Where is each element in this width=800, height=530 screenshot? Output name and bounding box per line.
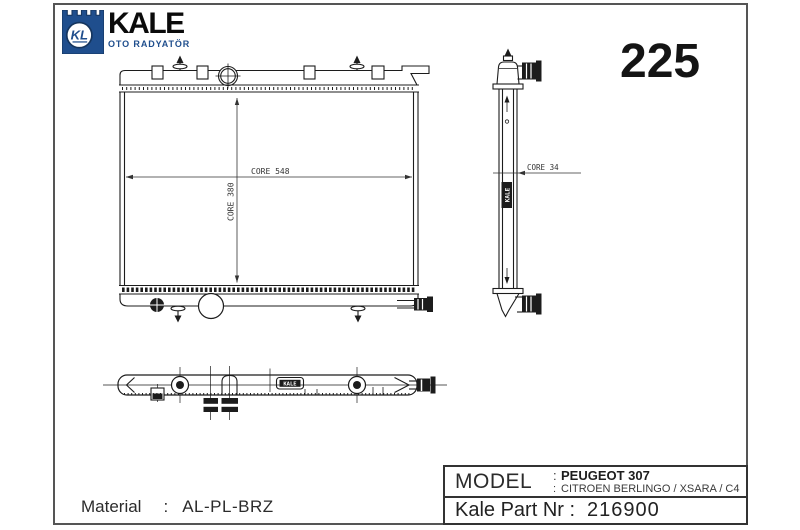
model-label: MODEL bbox=[445, 470, 553, 494]
radiator-technical-drawing: CORE 548 CORE 380 bbox=[0, 0, 800, 530]
model-row: MODEL :PEUGEOT 307 :CITROEN BERLINGO / X… bbox=[445, 467, 746, 498]
model-separator: : bbox=[553, 469, 561, 484]
mounting-pin-top-right bbox=[350, 56, 364, 71]
material-line: Material : AL-PL-BRZ bbox=[81, 497, 274, 517]
outlet-boss bbox=[199, 294, 224, 319]
part-number-value: 216900 bbox=[587, 499, 660, 522]
front-view-dimensions bbox=[126, 98, 412, 283]
mounting-pin-top-left bbox=[173, 56, 187, 71]
title-block: MODEL :PEUGEOT 307 :CITROEN BERLINGO / X… bbox=[443, 465, 748, 525]
bottom-view-drawing: KALE bbox=[103, 366, 447, 420]
bottom-pin-left bbox=[172, 367, 189, 403]
side-view-brand-tag: KALE bbox=[502, 182, 513, 208]
model-primary-text: PEUGEOT 307 bbox=[561, 468, 650, 483]
svg-text:KALE: KALE bbox=[283, 382, 296, 388]
bottom-pin-right bbox=[349, 367, 366, 403]
side-bottom-hose bbox=[515, 294, 542, 315]
front-hose-fitting bbox=[397, 297, 433, 313]
core-height-dimension: CORE 380 bbox=[227, 182, 236, 221]
model-secondary: :CITROEN BERLINGO / XSARA / C4 bbox=[553, 483, 740, 495]
model-secondary-text: CITROEN BERLINGO / XSARA / C4 bbox=[561, 483, 740, 495]
front-view-drawing: CORE 548 CORE 380 bbox=[119, 56, 433, 323]
model-primary: :PEUGEOT 307 bbox=[553, 469, 740, 484]
drain-plug bbox=[150, 298, 164, 312]
mounting-pin-bottom-left bbox=[171, 306, 185, 322]
svg-text:KALE: KALE bbox=[504, 187, 511, 202]
part-number-label: Kale Part Nr : bbox=[455, 499, 575, 522]
catalog-page: KL KALE OTO RADYATÖR 225 bbox=[0, 0, 800, 530]
material-label: Material bbox=[81, 497, 141, 517]
material-separator: : bbox=[163, 497, 168, 517]
part-number-row: Kale Part Nr : 216900 bbox=[445, 498, 746, 523]
side-top-hose bbox=[518, 61, 542, 82]
core-depth-dimension: CORE 34 bbox=[527, 163, 559, 172]
mounting-pin-bottom-right bbox=[351, 306, 365, 322]
bottom-view-brand-tag: KALE bbox=[277, 378, 304, 390]
core-width-dimension: CORE 548 bbox=[251, 167, 290, 176]
side-view-drawing: CORE 34 KALE bbox=[493, 49, 581, 317]
material-value: AL-PL-BRZ bbox=[182, 497, 273, 517]
model-separator: : bbox=[553, 483, 561, 495]
